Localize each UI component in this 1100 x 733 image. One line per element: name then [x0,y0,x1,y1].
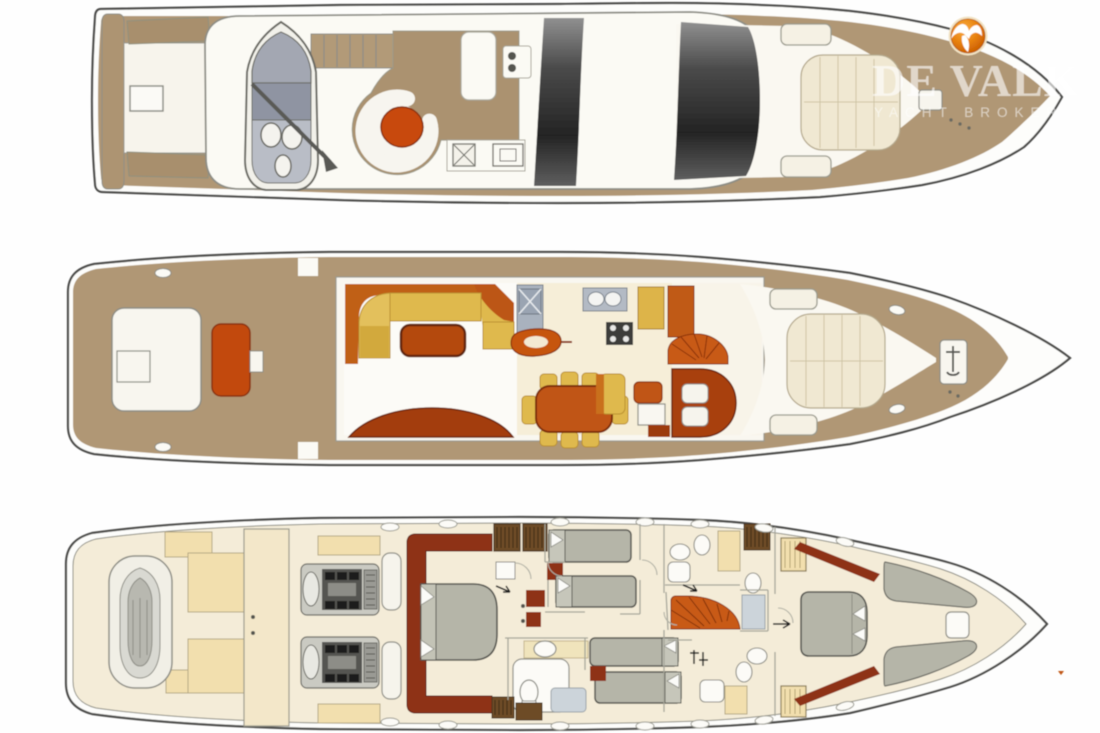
svg-text:DE VALK: DE VALK [872,55,1081,106]
svg-text:YACHT BROKER: YACHT BROKER [874,105,1063,120]
